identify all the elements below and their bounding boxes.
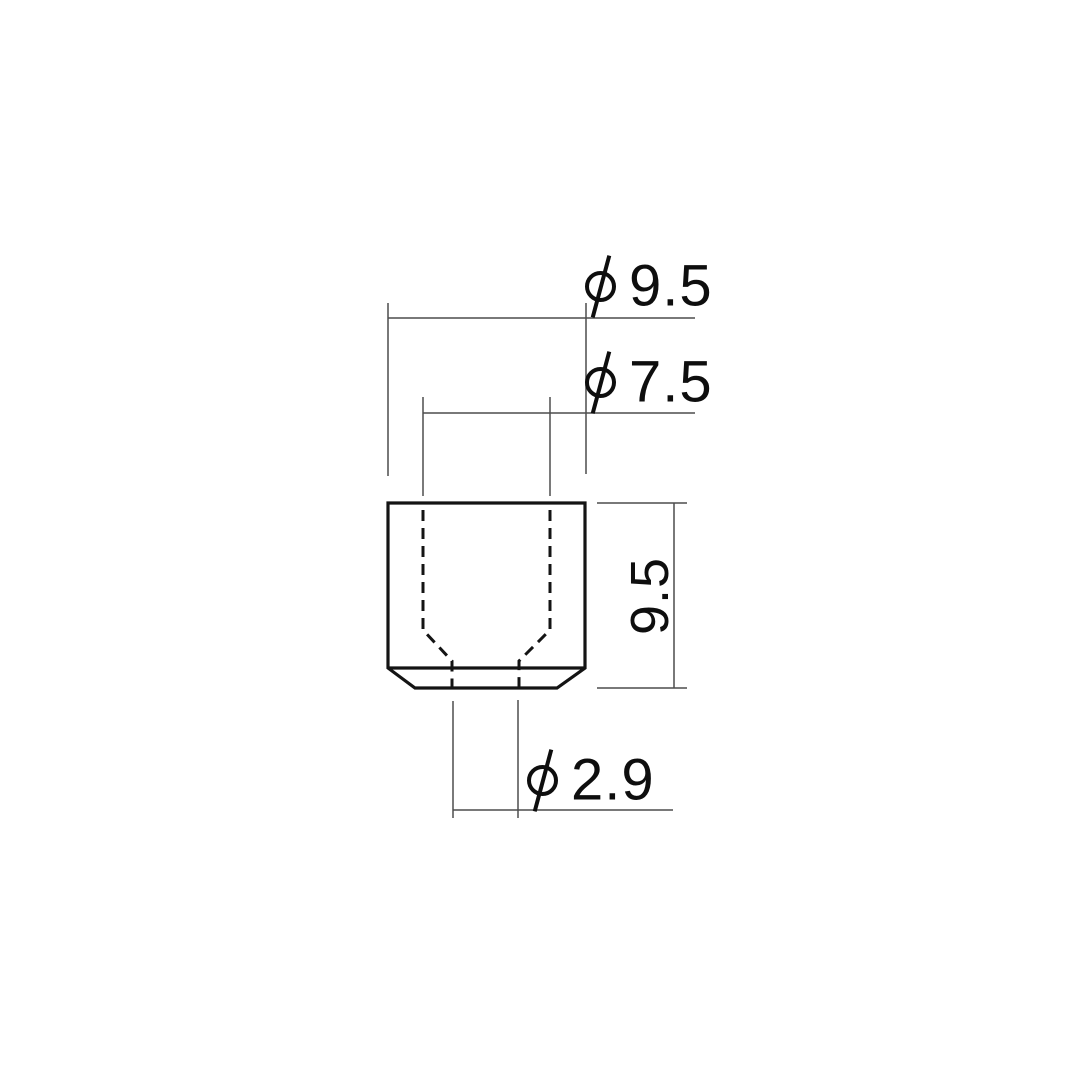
part-outline	[388, 503, 585, 688]
technical-drawing: 9.5 7.5 9.5 2.9	[0, 0, 1080, 1080]
diameter-symbol-icon	[527, 748, 559, 812]
diameter-symbol-icon	[585, 254, 617, 318]
through-hole-diameter-value: 2.9	[571, 747, 655, 814]
outer-diameter-value: 9.5	[629, 253, 713, 320]
label-counterbore-diameter: 7.5	[585, 349, 713, 416]
diameter-symbol-icon	[585, 350, 617, 414]
drawing-linework	[0, 0, 1080, 1080]
label-height: 9.5	[619, 557, 681, 635]
label-through-hole-diameter: 2.9	[527, 747, 655, 814]
part-side-view	[388, 503, 585, 688]
counterbore-diameter-value: 7.5	[629, 349, 713, 416]
height-value: 9.5	[619, 557, 681, 635]
label-outer-diameter: 9.5	[585, 253, 713, 320]
